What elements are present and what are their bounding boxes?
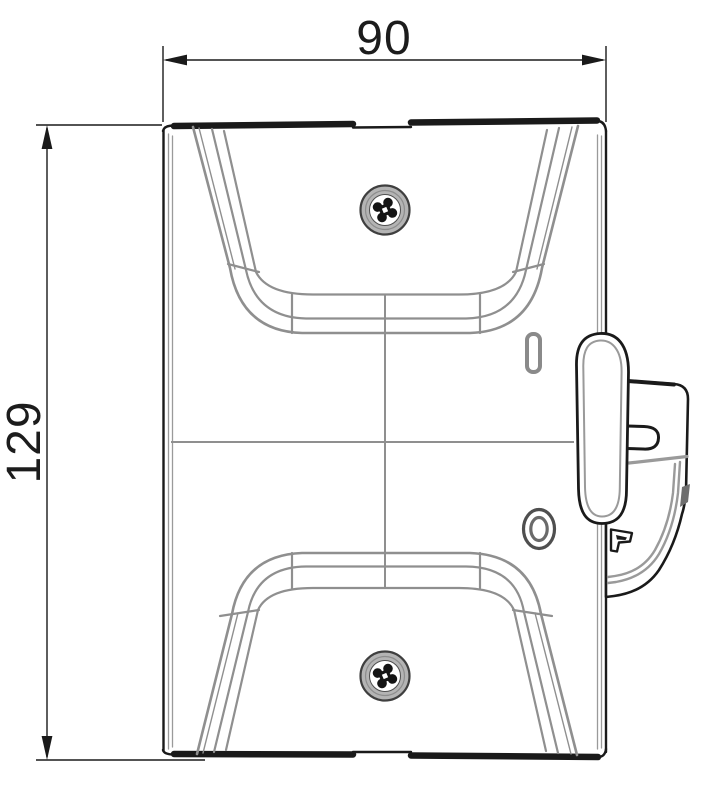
body-top-edge bbox=[174, 124, 353, 126]
side-latch-lever bbox=[576, 333, 628, 523]
body-top-edge-notch bbox=[353, 127, 411, 128]
arrowhead-up-icon bbox=[42, 125, 53, 149]
dimension-width: 90 bbox=[163, 12, 606, 122]
body-top-edge-2 bbox=[411, 121, 597, 123]
oval-aperture bbox=[524, 510, 555, 549]
bracket-hook-cutout bbox=[627, 426, 659, 449]
arrowhead-down-icon bbox=[42, 736, 53, 760]
lower-pocket-outer-ridge-left bbox=[203, 613, 238, 753]
lower-pocket-corner-tick-right bbox=[513, 610, 552, 616]
width-dimension-value: 90 bbox=[356, 12, 411, 65]
technical-drawing-canvas: 90 129 bbox=[0, 0, 704, 800]
height-dimension-value: 129 bbox=[0, 400, 51, 483]
top-mounting-screw bbox=[361, 186, 410, 235]
panel-split-lines bbox=[171, 295, 574, 588]
lower-pocket-corner-tick-left bbox=[220, 610, 259, 616]
arrowhead-left-icon bbox=[163, 55, 187, 66]
body-bottom-edge-2 bbox=[411, 756, 598, 758]
drawing-svg: 90 129 bbox=[0, 0, 704, 800]
bottom-mounting-screw bbox=[361, 652, 410, 701]
arrowhead-right-icon bbox=[582, 55, 606, 66]
body-bottom-edge bbox=[174, 754, 353, 755]
indicator-slot bbox=[527, 334, 540, 372]
